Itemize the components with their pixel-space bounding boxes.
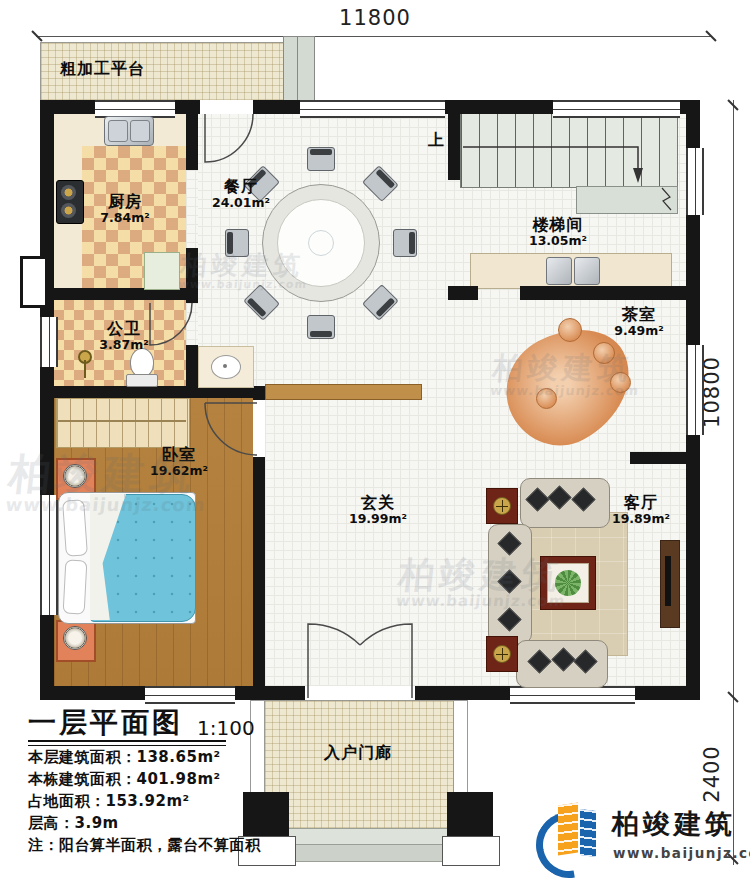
floor-plan-sheet: 11800 10800 2400 粗加工平台 上 [0, 0, 750, 880]
bedroom-label: 卧室19.62m² [136, 446, 222, 477]
porch-floor [264, 700, 454, 830]
brand-name: 柏竣建筑 [612, 806, 736, 842]
title-line: 层高：3.9m [28, 814, 119, 833]
porch-column [243, 792, 289, 836]
plan-title: 一层平面图 [28, 704, 183, 742]
stairwell-label: 楼梯间13.05m² [512, 216, 604, 247]
living-label: 客厅19.89m² [598, 494, 684, 525]
title-line: 占地面积：153.92m² [28, 792, 190, 811]
title-underline [28, 740, 226, 746]
title-line: 注：阳台算半面积，露台不算面积 [28, 836, 261, 855]
bath-label: 公卫3.87m² [82, 320, 166, 351]
title-line: 本栋建筑面积：401.98m² [28, 770, 221, 789]
porch-column-base [442, 836, 500, 866]
title-block: 一层平面图 1:100 [28, 704, 255, 742]
foyer-label: 玄关19.99m² [334, 494, 422, 525]
kitchen-label: 厨房7.84m² [82, 193, 168, 224]
porch-column [447, 792, 493, 836]
dining-label: 餐厅24.01m² [198, 178, 284, 209]
title-line: 本层建筑面积：138.65m² [28, 748, 221, 767]
logo-building-blue-icon [580, 809, 596, 857]
brand-logo-mark [534, 798, 608, 870]
brand-url: www.baijunjz.com [613, 845, 750, 861]
plan-scale: 1:100 [197, 716, 255, 742]
porch-side-wall [452, 700, 468, 795]
tearoom-label: 茶室9.49m² [596, 306, 682, 337]
porch-label: 入户门廊 [312, 744, 404, 762]
logo-building-orange-icon [558, 803, 578, 856]
